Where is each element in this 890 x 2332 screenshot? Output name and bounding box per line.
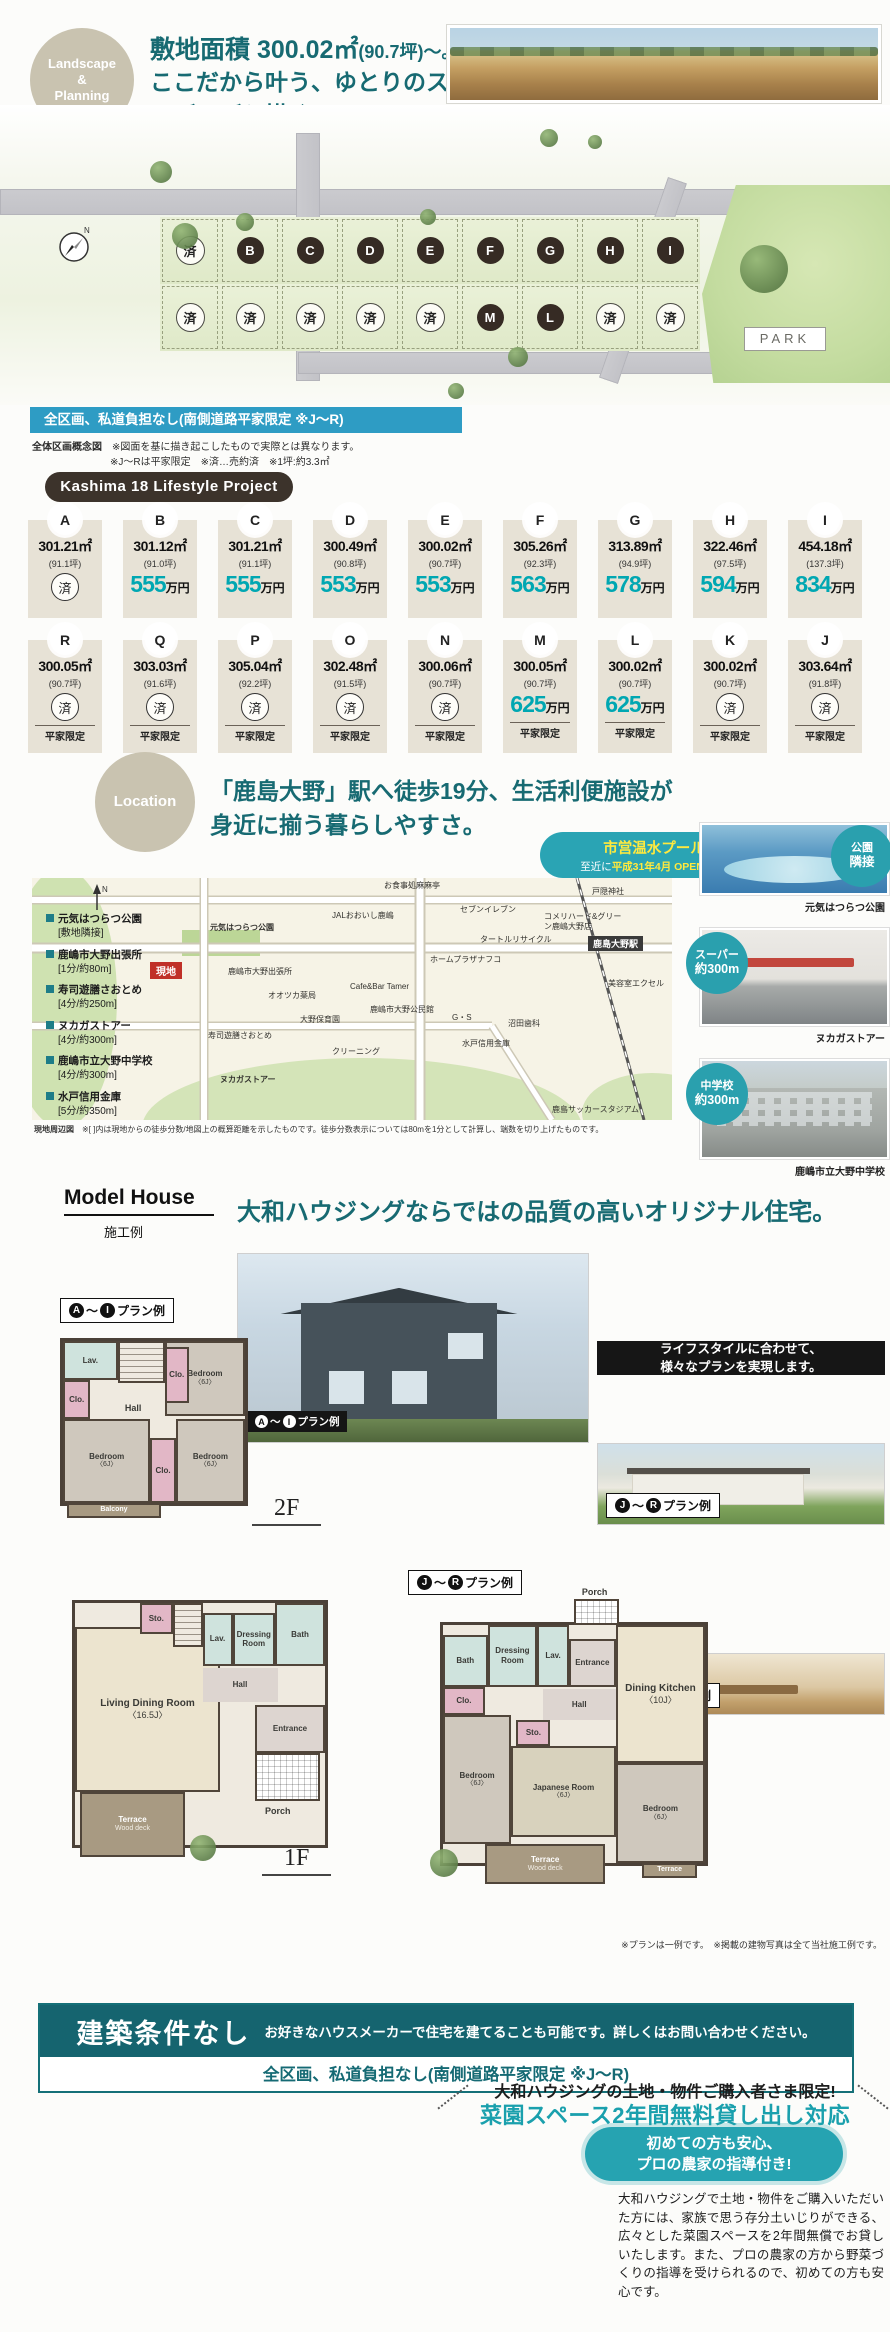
tree-illustration bbox=[236, 213, 254, 231]
lot-letter: E bbox=[430, 505, 460, 535]
lot-tsubo: (90.7坪) bbox=[598, 677, 672, 690]
lot-marker: 済 bbox=[656, 303, 685, 332]
lot-price-card: J 303.64㎡ (91.8坪) 万円 済 平家限定 bbox=[788, 640, 862, 753]
lot-tsubo: (91.8坪) bbox=[788, 677, 862, 690]
plan-note-line2: ※J〜Rは平家限定 ※済…売約済 ※1坪:約3.3㎡ bbox=[110, 455, 592, 470]
no-building-condition-banner: 建築条件なし お好きなハウスメーカーで住宅を建てることも可能です。詳しくはお問い… bbox=[40, 2005, 852, 2057]
legend-square-icon bbox=[46, 950, 54, 958]
map-label: ヌカガストアー bbox=[220, 1074, 276, 1085]
terrace: TerraceWood deck bbox=[485, 1844, 606, 1884]
lot-letter: P bbox=[240, 625, 270, 655]
plan-notes: 全体区画概念図 ※図面を基に描き起こしたもので実際とは異なります。 ※J〜Rは平… bbox=[32, 440, 592, 470]
room-dressing: Dressing Room bbox=[488, 1625, 538, 1687]
map-label: タートルリサイクル bbox=[480, 934, 552, 945]
lot-marker: 済 bbox=[416, 303, 445, 332]
lot-letter: I bbox=[810, 505, 840, 535]
lot-cell: H bbox=[580, 217, 640, 284]
room-entrance: Entrance bbox=[569, 1639, 616, 1687]
lot-price-card: B 301.12㎡ (91.0坪) 555万円 済 平家限定 bbox=[123, 520, 197, 618]
lot-price-card: A 301.21㎡ (91.1坪) 万円 済 平家限定 bbox=[28, 520, 102, 618]
legend-square-icon bbox=[46, 1021, 54, 1029]
lot-marker: H bbox=[597, 237, 624, 264]
floor-label-2f: 2F bbox=[252, 1495, 321, 1526]
window-illustration bbox=[329, 1371, 364, 1405]
tree-illustration bbox=[540, 129, 558, 147]
model-house-subtitle: 施工例 bbox=[104, 1222, 143, 1241]
photo-caption: 元気はつらつ公園 bbox=[700, 899, 885, 914]
legend-distance: [敷地隣接] bbox=[58, 928, 196, 941]
room-bedroom: Bedroom〈6J〉 bbox=[616, 1763, 705, 1863]
lot-cell: 済 bbox=[580, 284, 640, 351]
lot-letter: H bbox=[715, 505, 745, 535]
floor-plan-jr: Porch Dining Kitchen 〈10J〉 Bath Dressing… bbox=[440, 1622, 708, 1866]
lot-area: 322.46㎡ bbox=[693, 536, 767, 556]
tree-illustration bbox=[430, 1849, 458, 1877]
map-label: オオツカ薬局 bbox=[268, 990, 316, 1001]
lot-tsubo: (91.5坪) bbox=[313, 677, 387, 690]
sold-badge: 済 bbox=[28, 693, 102, 721]
lot-cell: D bbox=[340, 217, 400, 284]
lot-price: 555万円 bbox=[218, 571, 292, 598]
site-area-text: 敷地面積 300.02㎡ bbox=[150, 36, 358, 64]
room-japanese: Japanese Room〈6J〉 bbox=[511, 1746, 616, 1836]
lot-cell: I bbox=[640, 217, 700, 284]
room-bath: Bath bbox=[275, 1603, 325, 1666]
map-label: お食事処麻麻亭 bbox=[384, 880, 440, 891]
lot-marker: B bbox=[237, 237, 264, 264]
single-storey-label: 平家限定 bbox=[35, 725, 95, 743]
lot-price: 563万円 bbox=[503, 571, 577, 598]
lot-cell: 済 bbox=[280, 284, 340, 351]
lot-letter: G bbox=[620, 505, 650, 535]
lot-price: 553万円 bbox=[408, 571, 482, 598]
lot-marker: L bbox=[537, 304, 564, 331]
lot-area: 301.21㎡ bbox=[28, 536, 102, 556]
room-bath: Bath bbox=[443, 1635, 488, 1687]
lot-tsubo: (90.7坪) bbox=[408, 677, 482, 690]
map-label: G・S bbox=[452, 1012, 472, 1023]
lot-area: 301.21㎡ bbox=[218, 536, 292, 556]
plan-ai-photo-badge: A〜Iプラン例 bbox=[248, 1411, 347, 1432]
lot-letter: C bbox=[240, 505, 270, 535]
treeline-illustration bbox=[450, 47, 878, 56]
room-lavatory: Lav. bbox=[537, 1625, 568, 1687]
tree-illustration bbox=[588, 135, 602, 149]
map-label: 戸隠神社 bbox=[592, 886, 624, 897]
distance-badge: スーパー 約300m bbox=[686, 932, 748, 994]
lot-cell: G bbox=[520, 217, 580, 284]
farmer-guidance-badge: 初めての方も安心、 プロの農家の指導付き! bbox=[585, 2127, 843, 2181]
map-label: 鹿嶋市大野公民館 bbox=[370, 1004, 434, 1015]
lot-marker: 済 bbox=[296, 303, 325, 332]
badge-line: & bbox=[77, 72, 86, 88]
room-lavatory: Lav. bbox=[63, 1341, 118, 1380]
model-house-photo-main: A〜Iプラン例 bbox=[237, 1253, 589, 1443]
tree-illustration bbox=[448, 383, 464, 399]
lot-marker: I bbox=[657, 237, 684, 264]
station-label: 鹿島大野駅 bbox=[588, 936, 643, 951]
garden-space-heading: 菜園スペース2年間無料貸し出し対応 bbox=[440, 2098, 890, 2130]
photo-caption: 鹿嶋市立大野中学校 bbox=[700, 1163, 885, 1178]
map-label: 美容室エクセル bbox=[608, 978, 664, 989]
lot-area: 300.05㎡ bbox=[503, 656, 577, 676]
terrace-small: Terrace bbox=[642, 1863, 697, 1878]
location-photo-card: 公園 隣接 元気はつらつ公園 bbox=[700, 823, 885, 914]
lot-price-card: M 300.05㎡ (90.7坪) 625万円 済 平家限定 bbox=[503, 640, 577, 753]
lot-cell: 済 bbox=[340, 284, 400, 351]
legend-item: 鹿嶋市立大野中学校 [4分/約300m] bbox=[46, 1050, 196, 1083]
lot-tsubo: (90.7坪) bbox=[408, 557, 482, 570]
lot-marker: 済 bbox=[236, 303, 265, 332]
map-label: 沼田歯科 bbox=[508, 1018, 540, 1029]
lot-area: 303.03㎡ bbox=[123, 656, 197, 676]
model-house-heading: 大和ハウジングならではの品質の高いオリジナル住宅。 bbox=[237, 1192, 836, 1227]
lot-letter: L bbox=[620, 625, 650, 655]
area-map: N 元気はつらつ公園 [敷地隣接] 鹿嶋市大野出張所 [1分/約80m] 寿司遊… bbox=[32, 878, 672, 1120]
tree-illustration bbox=[190, 1835, 216, 1861]
single-storey-label: 平家限定 bbox=[510, 722, 570, 740]
lot-cell: C bbox=[280, 217, 340, 284]
lot-tsubo: (94.9坪) bbox=[598, 557, 672, 570]
stairs bbox=[173, 1603, 203, 1647]
lot-price: 834万円 bbox=[788, 571, 862, 598]
legend-name: 寿司遊膳さおとめ bbox=[58, 984, 142, 996]
lot-area: 305.04㎡ bbox=[218, 656, 292, 676]
lot-area: 305.26㎡ bbox=[503, 536, 577, 556]
plan-note-text: ※図面を基に描き起こしたもので実際とは異なります。 bbox=[112, 442, 359, 453]
legend-square-icon bbox=[46, 1056, 54, 1064]
map-label: セブンイレブン bbox=[460, 904, 516, 915]
tree-illustration bbox=[172, 223, 198, 249]
floor-label-1f: 1F bbox=[262, 1845, 331, 1876]
location-photo-card: スーパー 約300m ヌカガストアー bbox=[700, 928, 885, 1045]
lot-marker: D bbox=[357, 237, 384, 264]
site-photo bbox=[447, 25, 881, 103]
lot-area: 300.02㎡ bbox=[408, 536, 482, 556]
banner-title: 建築条件なし bbox=[76, 2012, 250, 2051]
lot-price-card: G 313.89㎡ (94.9坪) 578万円 済 平家限定 bbox=[598, 520, 672, 618]
lot-area: 300.49㎡ bbox=[313, 536, 387, 556]
legend-distance: [5分/約350m] bbox=[58, 1106, 196, 1119]
lot-cell: 済 bbox=[160, 284, 220, 351]
park-area bbox=[702, 185, 890, 383]
room-hall: Hall bbox=[543, 1689, 616, 1720]
room-storage: Sto. bbox=[140, 1603, 173, 1634]
legend-square-icon bbox=[46, 1092, 54, 1100]
lot-area: 454.18㎡ bbox=[788, 536, 862, 556]
legend-name: ヌカガストアー bbox=[58, 1020, 131, 1032]
map-label: 元気はつらつ公園 bbox=[210, 922, 274, 933]
svg-text:N: N bbox=[102, 885, 108, 894]
porch bbox=[574, 1599, 619, 1625]
lot-area: 300.02㎡ bbox=[693, 656, 767, 676]
site-area-tsubo: (90.7坪)〜。 bbox=[358, 42, 459, 62]
lot-marker: 済 bbox=[596, 303, 625, 332]
room-hall-label: Hall bbox=[125, 1403, 142, 1413]
lot-area: 303.64㎡ bbox=[788, 656, 862, 676]
model-house-photo-top-right: J〜Rプラン例 bbox=[597, 1443, 885, 1525]
lot-marker: M bbox=[477, 304, 504, 331]
legend-item: 元気はつらつ公園 [敷地隣接] bbox=[46, 908, 196, 941]
location-heading-line2: 身近に揃う暮らしやすさ。 bbox=[210, 806, 486, 840]
photo-caption: ヌカガストアー bbox=[700, 1030, 885, 1045]
lot-area: 300.06㎡ bbox=[408, 656, 482, 676]
window-illustration bbox=[448, 1333, 483, 1359]
lot-letter: Q bbox=[145, 625, 175, 655]
lot-letter: B bbox=[145, 505, 175, 535]
map-note: 現地周辺図 ※[ ]内は現地からの徒歩分数/地図上の概算距離を示したものです。徒… bbox=[34, 1124, 674, 1135]
lot-price-card: N 300.06㎡ (90.7坪) 万円 済 平家限定 bbox=[408, 640, 482, 753]
single-storey-label: 平家限定 bbox=[320, 725, 380, 743]
lot-price-card: R 300.05㎡ (90.7坪) 万円 済 平家限定 bbox=[28, 640, 102, 753]
site-marker-label: 現地 bbox=[150, 962, 182, 979]
room-bedroom: Bedroom〈6J〉 bbox=[443, 1715, 511, 1844]
room-closet: Clo. bbox=[443, 1687, 485, 1716]
location-photos: 公園 隣接 元気はつらつ公園 スーパー 約300m ヌカガストアー 中学校 約3… bbox=[700, 823, 885, 1192]
legend-distance: [4分/約250m] bbox=[58, 999, 196, 1012]
tree-illustration bbox=[508, 347, 528, 367]
lot-marker: 済 bbox=[356, 303, 385, 332]
single-storey-label: 平家限定 bbox=[700, 725, 760, 743]
lot-cell: 済 bbox=[220, 284, 280, 351]
park-label: PARK bbox=[744, 327, 826, 351]
svg-text:N: N bbox=[84, 226, 90, 235]
lot-letter: D bbox=[335, 505, 365, 535]
lot-price-card: L 300.02㎡ (90.7坪) 625万円 済 平家限定 bbox=[598, 640, 672, 753]
lot-tsubo: (137.3坪) bbox=[788, 557, 862, 570]
lot-letter: J bbox=[810, 625, 840, 655]
tree-illustration bbox=[740, 245, 788, 293]
legend-name: 鹿嶋市大野出張所 bbox=[58, 949, 142, 961]
lot-price: 555万円 bbox=[123, 571, 197, 598]
lot-price-card: H 322.46㎡ (97.5坪) 594万円 済 平家限定 bbox=[693, 520, 767, 618]
lot-area: 300.02㎡ bbox=[598, 656, 672, 676]
room-closet: Clo. bbox=[63, 1380, 90, 1419]
distance-badge: 中学校 約300m bbox=[686, 1063, 748, 1125]
single-storey-label: 平家限定 bbox=[130, 725, 190, 743]
map-label: 鹿嶋市大野出張所 bbox=[228, 966, 292, 977]
plan-ai-badge: A〜Iプラン例 bbox=[60, 1298, 174, 1323]
lot-cell: 済 bbox=[400, 284, 460, 351]
location-heading-line1: 「鹿島大野」駅へ徒歩19分、生活利便施設が bbox=[210, 772, 673, 806]
lot-letter: R bbox=[50, 625, 80, 655]
lot-tsubo: (90.7坪) bbox=[28, 677, 102, 690]
price-table-row1: A 301.21㎡ (91.1坪) 万円 済 平家限定 B 301.12㎡ (9… bbox=[28, 520, 862, 618]
porch-label: Porch bbox=[265, 1806, 291, 1816]
window-illustration bbox=[392, 1371, 427, 1405]
model-house-title: Model House bbox=[64, 1186, 214, 1216]
distance-badge: 公園 隣接 bbox=[831, 825, 890, 887]
lot-row-2: 済済済済済ML済済 bbox=[160, 284, 700, 351]
lot-price: 594万円 bbox=[693, 571, 767, 598]
room-closet: Clo. bbox=[150, 1438, 175, 1503]
location-badge: Location bbox=[95, 752, 195, 852]
legend-square-icon bbox=[46, 914, 54, 922]
room-closet: Clo. bbox=[165, 1347, 189, 1402]
legend-name: 水戸信用金庫 bbox=[58, 1091, 121, 1103]
lot-price: 553万円 bbox=[313, 571, 387, 598]
lot-cell: L bbox=[520, 284, 580, 351]
badge-line: Planning bbox=[55, 88, 110, 104]
legend-distance: [4分/約300m] bbox=[58, 1070, 196, 1083]
lot-tsubo: (91.0坪) bbox=[123, 557, 197, 570]
single-storey-label: 平家限定 bbox=[605, 722, 665, 740]
badge-line: Landscape bbox=[48, 56, 116, 72]
porch-label: Porch bbox=[582, 1587, 608, 1597]
sold-badge: 済 bbox=[788, 693, 862, 721]
lot-grid: 済BCDEFGHI 済済済済済ML済済 bbox=[160, 217, 700, 351]
lot-letter: O bbox=[335, 625, 365, 655]
tree-illustration bbox=[420, 209, 436, 225]
room-hall: Hall bbox=[203, 1668, 278, 1702]
lot-price-card: P 305.04㎡ (92.2坪) 万円 済 平家限定 bbox=[218, 640, 292, 753]
sold-badge: 済 bbox=[123, 693, 197, 721]
lot-price: 578万円 bbox=[598, 571, 672, 598]
location-photo-card: 中学校 約300m 鹿嶋市立大野中学校 bbox=[700, 1059, 885, 1178]
single-storey-label: 平家限定 bbox=[225, 725, 285, 743]
legend-item: 寿司遊膳さおとめ [4分/約250m] bbox=[46, 979, 196, 1012]
lot-tsubo: (91.1坪) bbox=[218, 557, 292, 570]
room-living-dining: Living Dining Room 〈16.5J〉 bbox=[75, 1627, 220, 1792]
sold-badge: 済 bbox=[218, 693, 292, 721]
sold-badge: 済 bbox=[313, 693, 387, 721]
room-bedroom: Bedroom〈6J〉 bbox=[63, 1419, 150, 1503]
badge-line: Location bbox=[114, 793, 177, 812]
legend-name: 元気はつらつ公園 bbox=[58, 913, 142, 925]
legend-name: 鹿嶋市立大野中学校 bbox=[58, 1055, 153, 1067]
plan-note-line1: 全体区画概念図 ※図面を基に描き起こしたもので実際とは異なります。 bbox=[32, 440, 592, 455]
map-label: 水戸信用金庫 bbox=[462, 1038, 510, 1049]
map-label: 寿司遊膳さおとめ bbox=[208, 1030, 272, 1041]
lot-tsubo: (90.7坪) bbox=[693, 677, 767, 690]
porch bbox=[255, 1753, 320, 1801]
legend-distance: [4分/約300m] bbox=[58, 1035, 196, 1048]
lot-price-card: D 300.49㎡ (90.8坪) 553万円 済 平家限定 bbox=[313, 520, 387, 618]
compass-icon: N bbox=[52, 223, 96, 267]
lot-letter: N bbox=[430, 625, 460, 655]
plan-jr-photo-badge: J〜Rプラン例 bbox=[606, 1493, 720, 1518]
lot-letter: M bbox=[525, 625, 555, 655]
lot-cell: F bbox=[460, 217, 520, 284]
lot-tsubo: (92.3坪) bbox=[503, 557, 577, 570]
lot-cell: E bbox=[400, 217, 460, 284]
sold-badge: 済 bbox=[28, 573, 102, 601]
lot-marker: 済 bbox=[176, 303, 205, 332]
map-label: JALおおいし鹿嶋 bbox=[332, 910, 394, 921]
room-entrance: Entrance bbox=[255, 1705, 325, 1753]
lot-tsubo: (90.7坪) bbox=[503, 677, 577, 690]
lot-area: 313.89㎡ bbox=[598, 536, 672, 556]
map-label: クリーニング bbox=[332, 1046, 380, 1057]
no-private-road-banner: 全区画、私道負担なし(南側道路平家限定 ※J〜R) bbox=[30, 407, 462, 433]
lot-area: 302.48㎡ bbox=[313, 656, 387, 676]
price-table-row2: R 300.05㎡ (90.7坪) 万円 済 平家限定 Q 303.03㎡ (9… bbox=[28, 640, 862, 753]
legend-item: 水戸信用金庫 [5分/約350m] bbox=[46, 1086, 196, 1119]
lot-tsubo: (91.6坪) bbox=[123, 677, 197, 690]
lot-letter: A bbox=[50, 505, 80, 535]
planning-heading-line1: 敷地面積 300.02㎡(90.7坪)〜。 bbox=[150, 30, 459, 66]
lot-price: 625万円 bbox=[503, 691, 577, 718]
floor-plan-2f: Lav. Bedroom〈6J〉 Clo. Clo. Hall Bedroom〈… bbox=[60, 1338, 248, 1506]
plan-note-title: 全体区画概念図 bbox=[32, 442, 102, 453]
terrace: TerraceWood deck bbox=[80, 1792, 185, 1857]
room-dining-kitchen: Dining Kitchen 〈10J〉 bbox=[616, 1625, 705, 1763]
lot-marker: F bbox=[477, 237, 504, 264]
site-plan-map: PARK 済BCDEFGHI 済済済済済ML済済 N bbox=[0, 105, 890, 405]
lot-cell: 済 bbox=[640, 284, 700, 351]
lot-area: 301.12㎡ bbox=[123, 536, 197, 556]
lot-marker: E bbox=[417, 237, 444, 264]
lot-price-card: K 300.02㎡ (90.7坪) 万円 済 平家限定 bbox=[693, 640, 767, 753]
banner-text: お好きなハウスメーカーで住宅を建てることも可能です。詳しくはお問い合わせください… bbox=[264, 2021, 815, 2041]
lot-price-card: O 302.48㎡ (91.5坪) 万円 済 平家限定 bbox=[313, 640, 387, 753]
map-legend: 元気はつらつ公園 [敷地隣接] 鹿嶋市大野出張所 [1分/約80m] 寿司遊膳さ… bbox=[46, 908, 196, 1120]
lot-price-card: F 305.26㎡ (92.3坪) 563万円 済 平家限定 bbox=[503, 520, 577, 618]
room-lavatory: Lav. bbox=[203, 1613, 233, 1666]
tree-illustration bbox=[150, 161, 172, 183]
map-label: Cafe&Bar Tamer bbox=[350, 982, 409, 991]
lot-letter: K bbox=[715, 625, 745, 655]
lot-marker: C bbox=[297, 237, 324, 264]
map-label: コメリハード&グリーン鹿嶋大野店 bbox=[544, 912, 624, 931]
map-label: 鹿島サッカースタジアム bbox=[552, 1104, 639, 1115]
stairs bbox=[118, 1341, 165, 1383]
plan-jr-badge: J〜Rプラン例 bbox=[408, 1570, 522, 1595]
project-name-badge: Kashima 18 Lifestyle Project bbox=[45, 472, 293, 502]
balcony: Balcony bbox=[67, 1503, 162, 1518]
single-storey-label: 平家限定 bbox=[795, 725, 855, 743]
lot-tsubo: (90.8坪) bbox=[313, 557, 387, 570]
lot-price-card: E 300.02㎡ (90.7坪) 553万円 済 平家限定 bbox=[408, 520, 482, 618]
lot-area: 300.05㎡ bbox=[28, 656, 102, 676]
sold-badge: 済 bbox=[693, 693, 767, 721]
lot-letter: F bbox=[525, 505, 555, 535]
lot-price-card: C 301.21㎡ (91.1坪) 555万円 済 平家限定 bbox=[218, 520, 292, 618]
lot-price-card: I 454.18㎡ (137.3坪) 834万円 済 平家限定 bbox=[788, 520, 862, 618]
garden-space-body: 大和ハウジングで土地・物件をご購入いただいた方には、家族で思う存分土いじりができ… bbox=[618, 2190, 884, 2301]
flyer-page: Landscape & Planning 敷地面積 300.02㎡(90.7坪)… bbox=[0, 0, 890, 2332]
room-dressing: Dressing Room bbox=[233, 1613, 276, 1666]
legend-item: ヌカガストアー [4分/約300m] bbox=[46, 1015, 196, 1048]
room-bedroom: Bedroom〈6J〉 bbox=[176, 1419, 245, 1503]
sold-badge: 済 bbox=[408, 693, 482, 721]
model-house-note: ※プランは一例です。 ※掲載の建物写真は全て当社施工例です。 bbox=[420, 1938, 882, 1951]
lot-marker: G bbox=[537, 237, 564, 264]
single-storey-label: 平家限定 bbox=[415, 725, 475, 743]
room-storage: Sto. bbox=[516, 1720, 550, 1746]
lot-cell: M bbox=[460, 284, 520, 351]
map-label: 大野保育園 bbox=[300, 1014, 340, 1025]
lot-price-card: Q 303.03㎡ (91.6坪) 万円 済 平家限定 bbox=[123, 640, 197, 753]
lot-price: 625万円 bbox=[598, 691, 672, 718]
plans-banner: ライフスタイルに合わせて、 様々なプランを実現します。 bbox=[597, 1341, 885, 1375]
lot-tsubo: (97.5坪) bbox=[693, 557, 767, 570]
floor-plan-1f: Living Dining Room 〈16.5J〉 Sto. Lav. Dre… bbox=[72, 1600, 328, 1848]
lot-tsubo: (91.1坪) bbox=[28, 557, 102, 570]
map-label: ホームプラザナフコ bbox=[430, 954, 501, 965]
legend-square-icon bbox=[46, 985, 54, 993]
lot-tsubo: (92.2坪) bbox=[218, 677, 292, 690]
